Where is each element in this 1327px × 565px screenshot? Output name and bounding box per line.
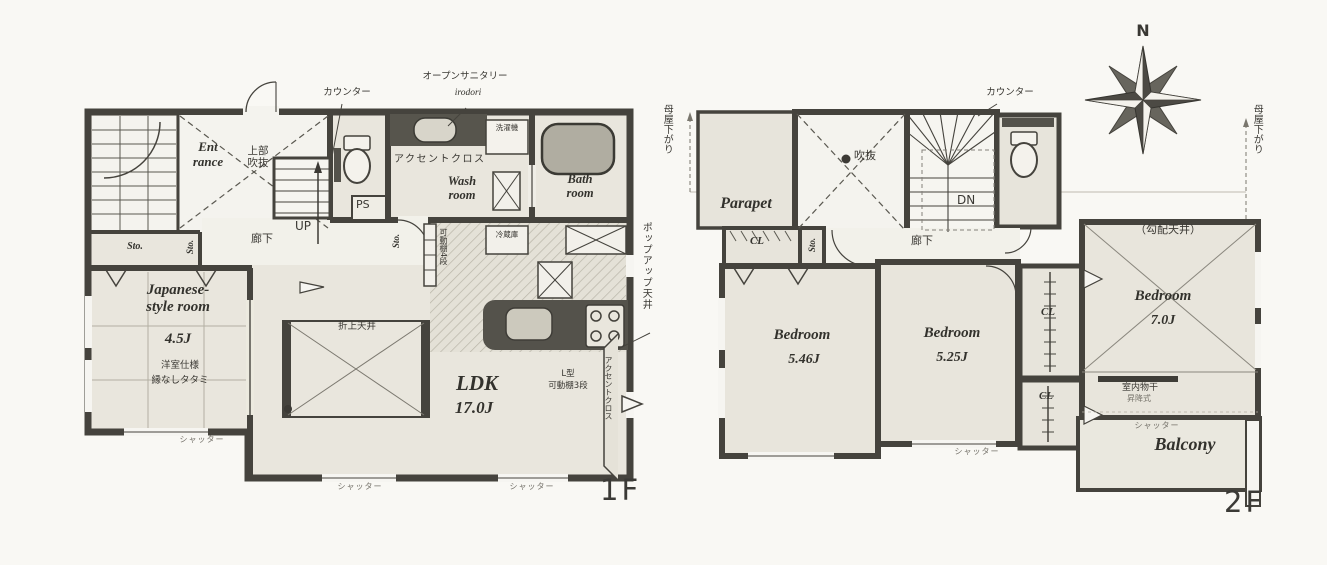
storage-label-main: Sto. — [127, 241, 143, 252]
entrance-label: Ent rance — [193, 140, 223, 169]
coffered-ceiling-label: 折上天井 — [338, 322, 376, 333]
sloped-ceiling-label: （勾配天井） — [1135, 224, 1201, 236]
washroom-label: Wash room — [448, 174, 476, 202]
balcony-label: Balcony — [1155, 434, 1216, 454]
floorplan-page: カウンター オープンサニタリー irodori Ent rance 上部 吹抜 … — [0, 0, 1327, 565]
stairs-up-label: UP — [295, 220, 311, 233]
bedroom2-label: Bedroom — [924, 325, 981, 342]
accent-cloth-label-ldk: アクセントクロス — [603, 356, 612, 466]
stairs-dn-label: DN — [957, 194, 975, 207]
shutter-label-japanese: シャッター — [180, 436, 225, 445]
ldk-size-label: 17.0J — [455, 398, 493, 417]
storage-label-corridor: Sto. — [391, 223, 401, 259]
ps-label: PS — [356, 199, 370, 211]
hallway-label-2f: 廊下 — [911, 235, 933, 247]
compass-rose — [1085, 46, 1201, 154]
l-shelf-label-line1: L型 — [561, 370, 574, 380]
open-sanitary-label: オープンサニタリー — [423, 72, 508, 83]
pantry-shelf-label: 可動棚4段 — [438, 228, 447, 300]
open-sanitary-sub-label: irodori — [455, 88, 482, 99]
bathroom-label: Bath room — [566, 172, 593, 200]
accent-cloth-label-wash: アクセントクロス — [394, 154, 486, 165]
closet-label-bedroom1: CL — [750, 235, 764, 247]
storage-label-entry: Sto. — [185, 229, 195, 265]
japanese-room-size-label: 4.5J — [165, 331, 191, 348]
shutter-label-balcony: シャッター — [1135, 422, 1180, 431]
tatami-note1-label: 洋室仕様 — [161, 361, 199, 372]
void-label: 吹抜 — [854, 150, 876, 162]
moya-sagari-label-left: 母屋下がり — [661, 104, 672, 194]
ldk-label: LDK — [456, 372, 498, 396]
counter-label-1f: カウンター — [323, 88, 371, 99]
shutter-label-ldk-right: シャッター — [510, 483, 555, 492]
compass-north-label: N — [1136, 22, 1149, 40]
closet-label-right-top: CL — [1041, 306, 1055, 318]
shutter-label-ldk-left: シャッター — [338, 483, 383, 492]
floor2-label: 2F — [1224, 486, 1265, 518]
washer-label: 洗濯機 — [496, 124, 519, 132]
fridge-label: 冷蔵庫 — [496, 231, 519, 239]
upper-void-label: 上部 吹抜 — [248, 146, 269, 170]
closet-label-right-bottom: CL — [1039, 390, 1053, 402]
shutter-label-bedroom2: シャッター — [955, 448, 1000, 457]
moya-sagari-label-right: 母屋下がり — [1251, 104, 1262, 204]
parapet-label: Parapet — [720, 195, 772, 213]
floor1-label: 1F — [600, 474, 641, 506]
bedroom3-size-label: 7.0J — [1151, 313, 1176, 329]
indoor-drying-label: 室内物干 — [1122, 383, 1158, 393]
storage-label-2f: Sto. — [807, 227, 817, 263]
hallway-label-1f: 廊下 — [251, 233, 273, 245]
popup-ceiling-label: ポップアップ天井 — [640, 222, 651, 344]
tatami-note2-label: 縁なしタタミ — [151, 376, 208, 387]
bedroom2-size-label: 5.25J — [936, 350, 968, 366]
l-shelf-label-line2: 可動棚3段 — [548, 382, 587, 392]
bedroom3-label: Bedroom — [1135, 288, 1192, 305]
bedroom1-size-label: 5.46J — [788, 352, 820, 368]
bedroom1-label: Bedroom — [774, 327, 831, 344]
indoor-drying-type-label: 昇降式 — [1127, 395, 1151, 404]
japanese-room-label: Japanese- style room — [146, 282, 210, 316]
counter-label-2f: カウンター — [986, 88, 1034, 99]
